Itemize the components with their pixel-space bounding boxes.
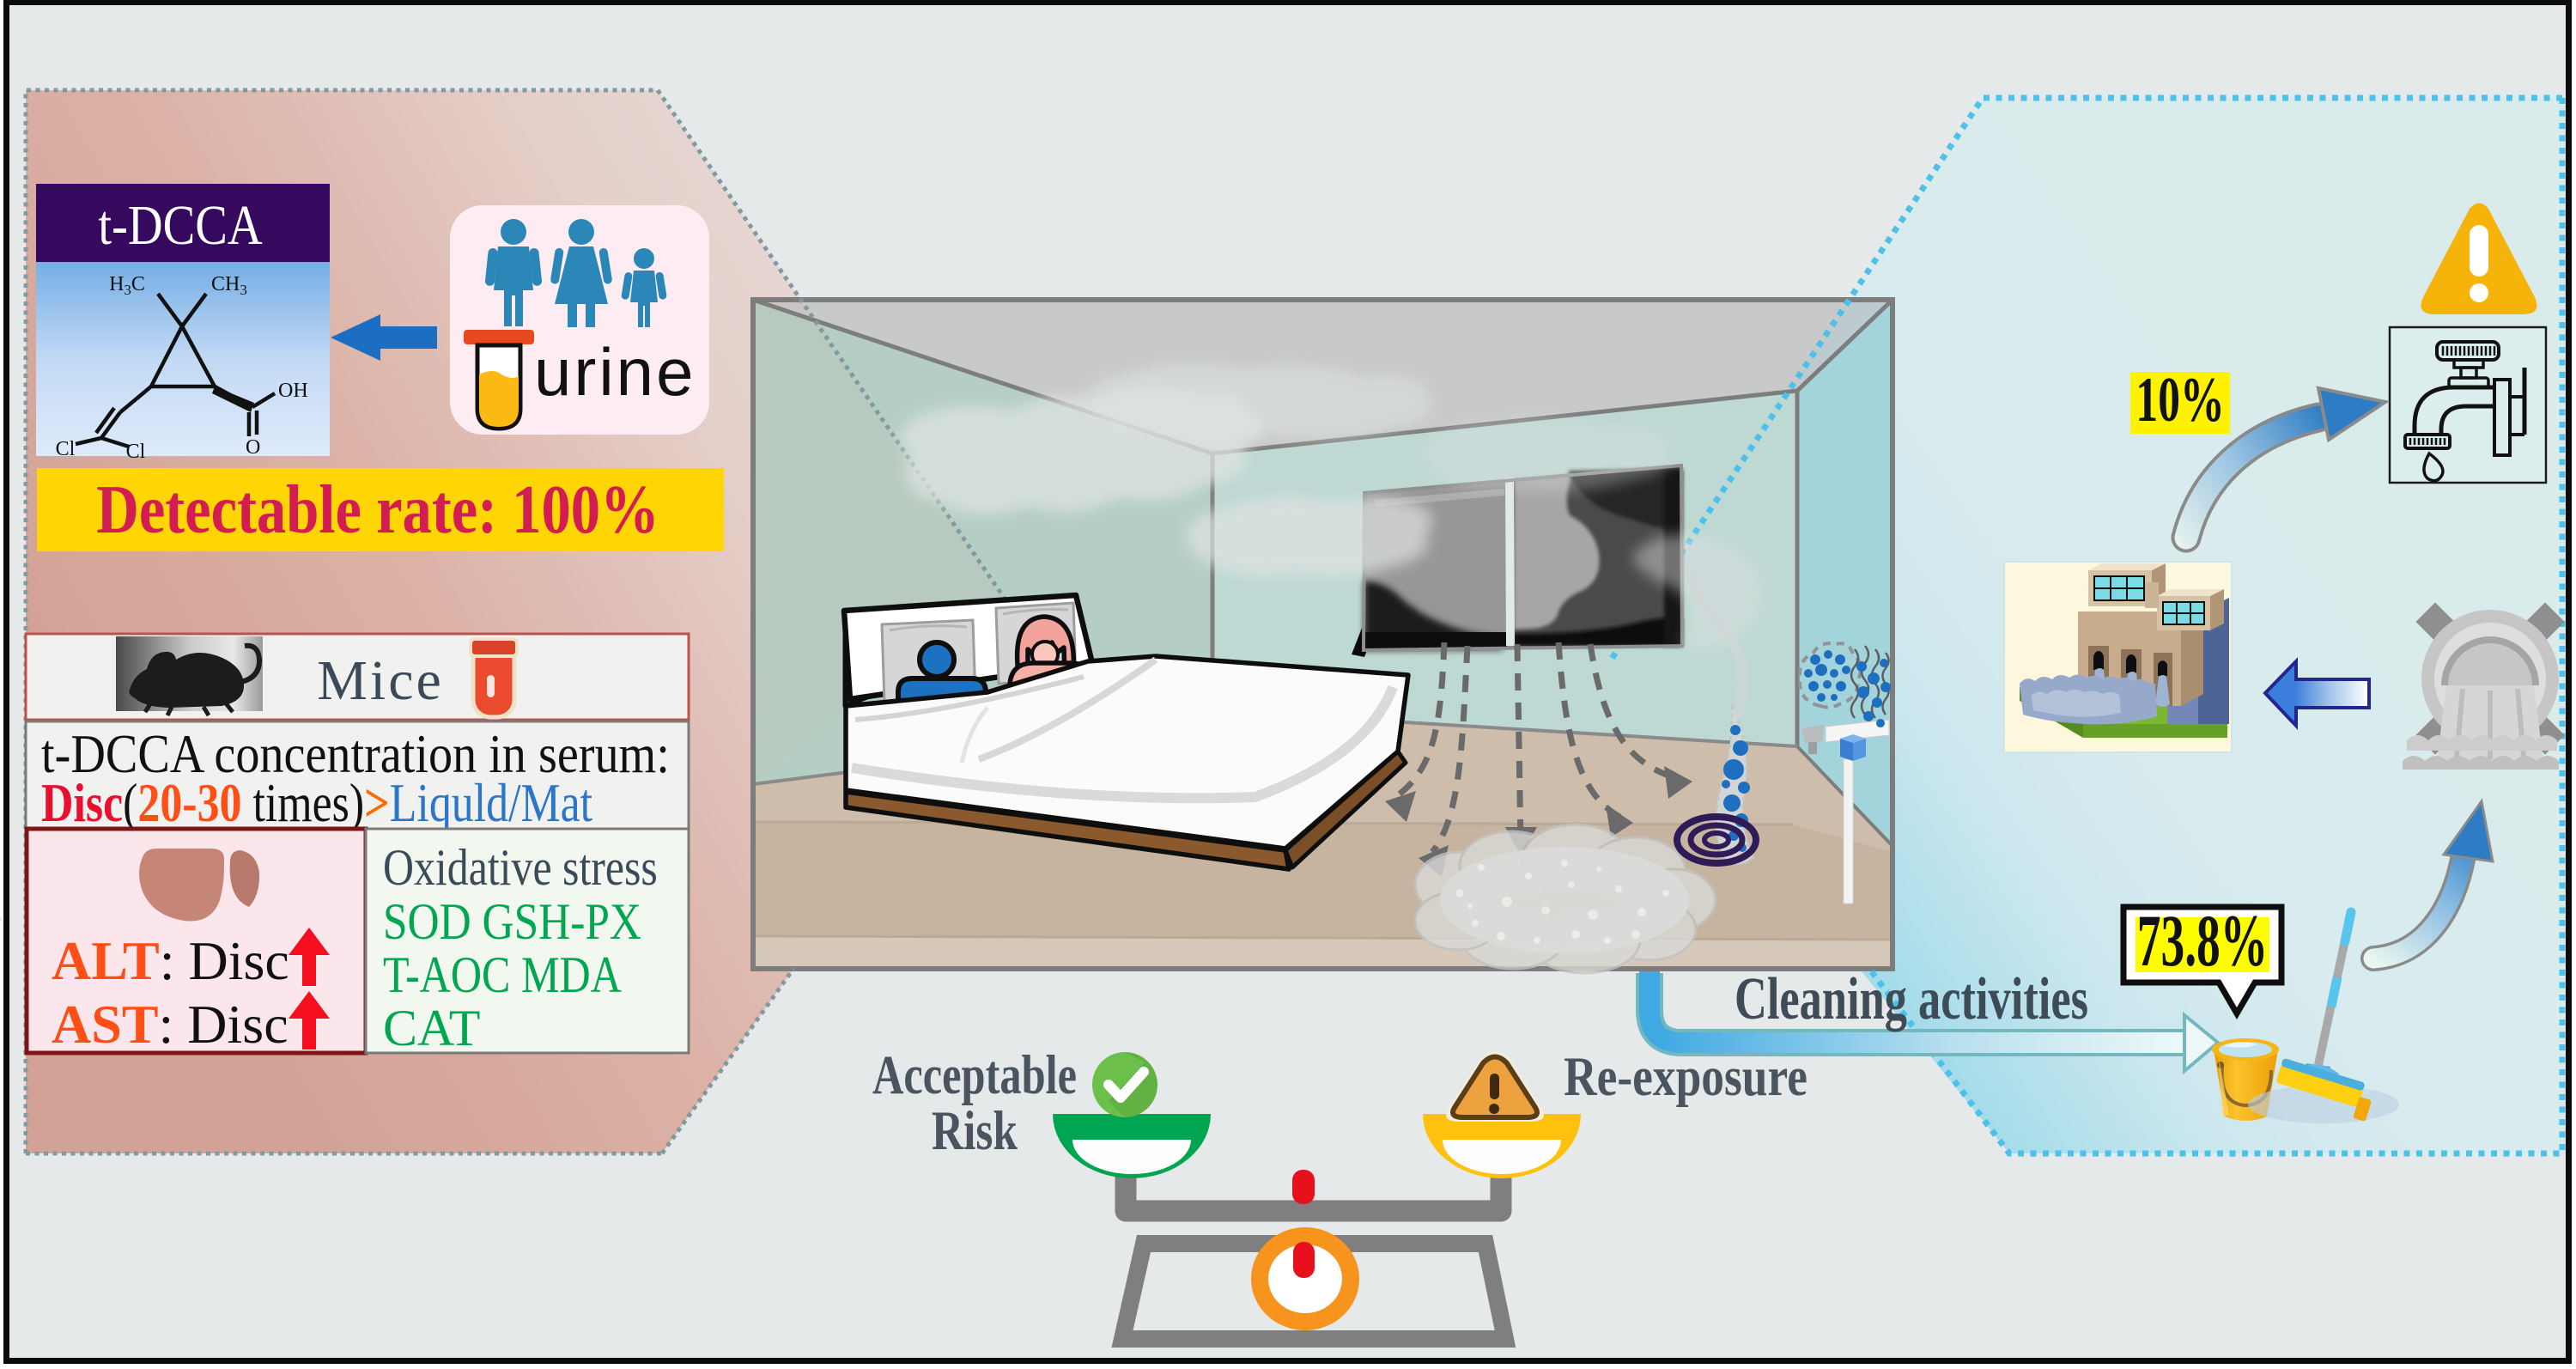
svg-text:10%: 10%: [2136, 364, 2225, 435]
svg-text:ALT: Disc: ALT: Disc: [52, 930, 289, 991]
svg-text:Oxidative stress: Oxidative stress: [383, 839, 658, 896]
svg-text:Acceptable: Acceptable: [872, 1043, 1077, 1106]
svg-text:T-AOC MDA: T-AOC MDA: [383, 946, 622, 1003]
svg-text:Cl: Cl: [126, 441, 146, 463]
svg-text:AST: Disc: AST: Disc: [52, 994, 289, 1055]
svg-text:Detectable rate: 100%: Detectable rate: 100%: [96, 472, 659, 548]
svg-text:Cleaning activities: Cleaning activities: [1735, 966, 2088, 1032]
svg-text:OH: OH: [278, 380, 308, 402]
svg-text:t-DCCA: t-DCCA: [98, 194, 262, 257]
svg-text:73.8%: 73.8%: [2137, 900, 2269, 982]
svg-text:urine: urine: [534, 334, 696, 410]
svg-text:Re-exposure: Re-exposure: [1564, 1045, 1807, 1107]
svg-text:O: O: [246, 436, 260, 459]
svg-text:Risk: Risk: [932, 1099, 1018, 1161]
svg-text:Cl: Cl: [56, 438, 76, 460]
svg-text:SOD GSH-PX: SOD GSH-PX: [383, 893, 641, 951]
svg-text:CAT: CAT: [383, 1000, 480, 1056]
svg-text:Mice: Mice: [317, 649, 444, 712]
svg-text:Disc(20-30 times)>Liquld/Mat: Disc(20-30 times)>Liquld/Mat: [41, 772, 592, 833]
